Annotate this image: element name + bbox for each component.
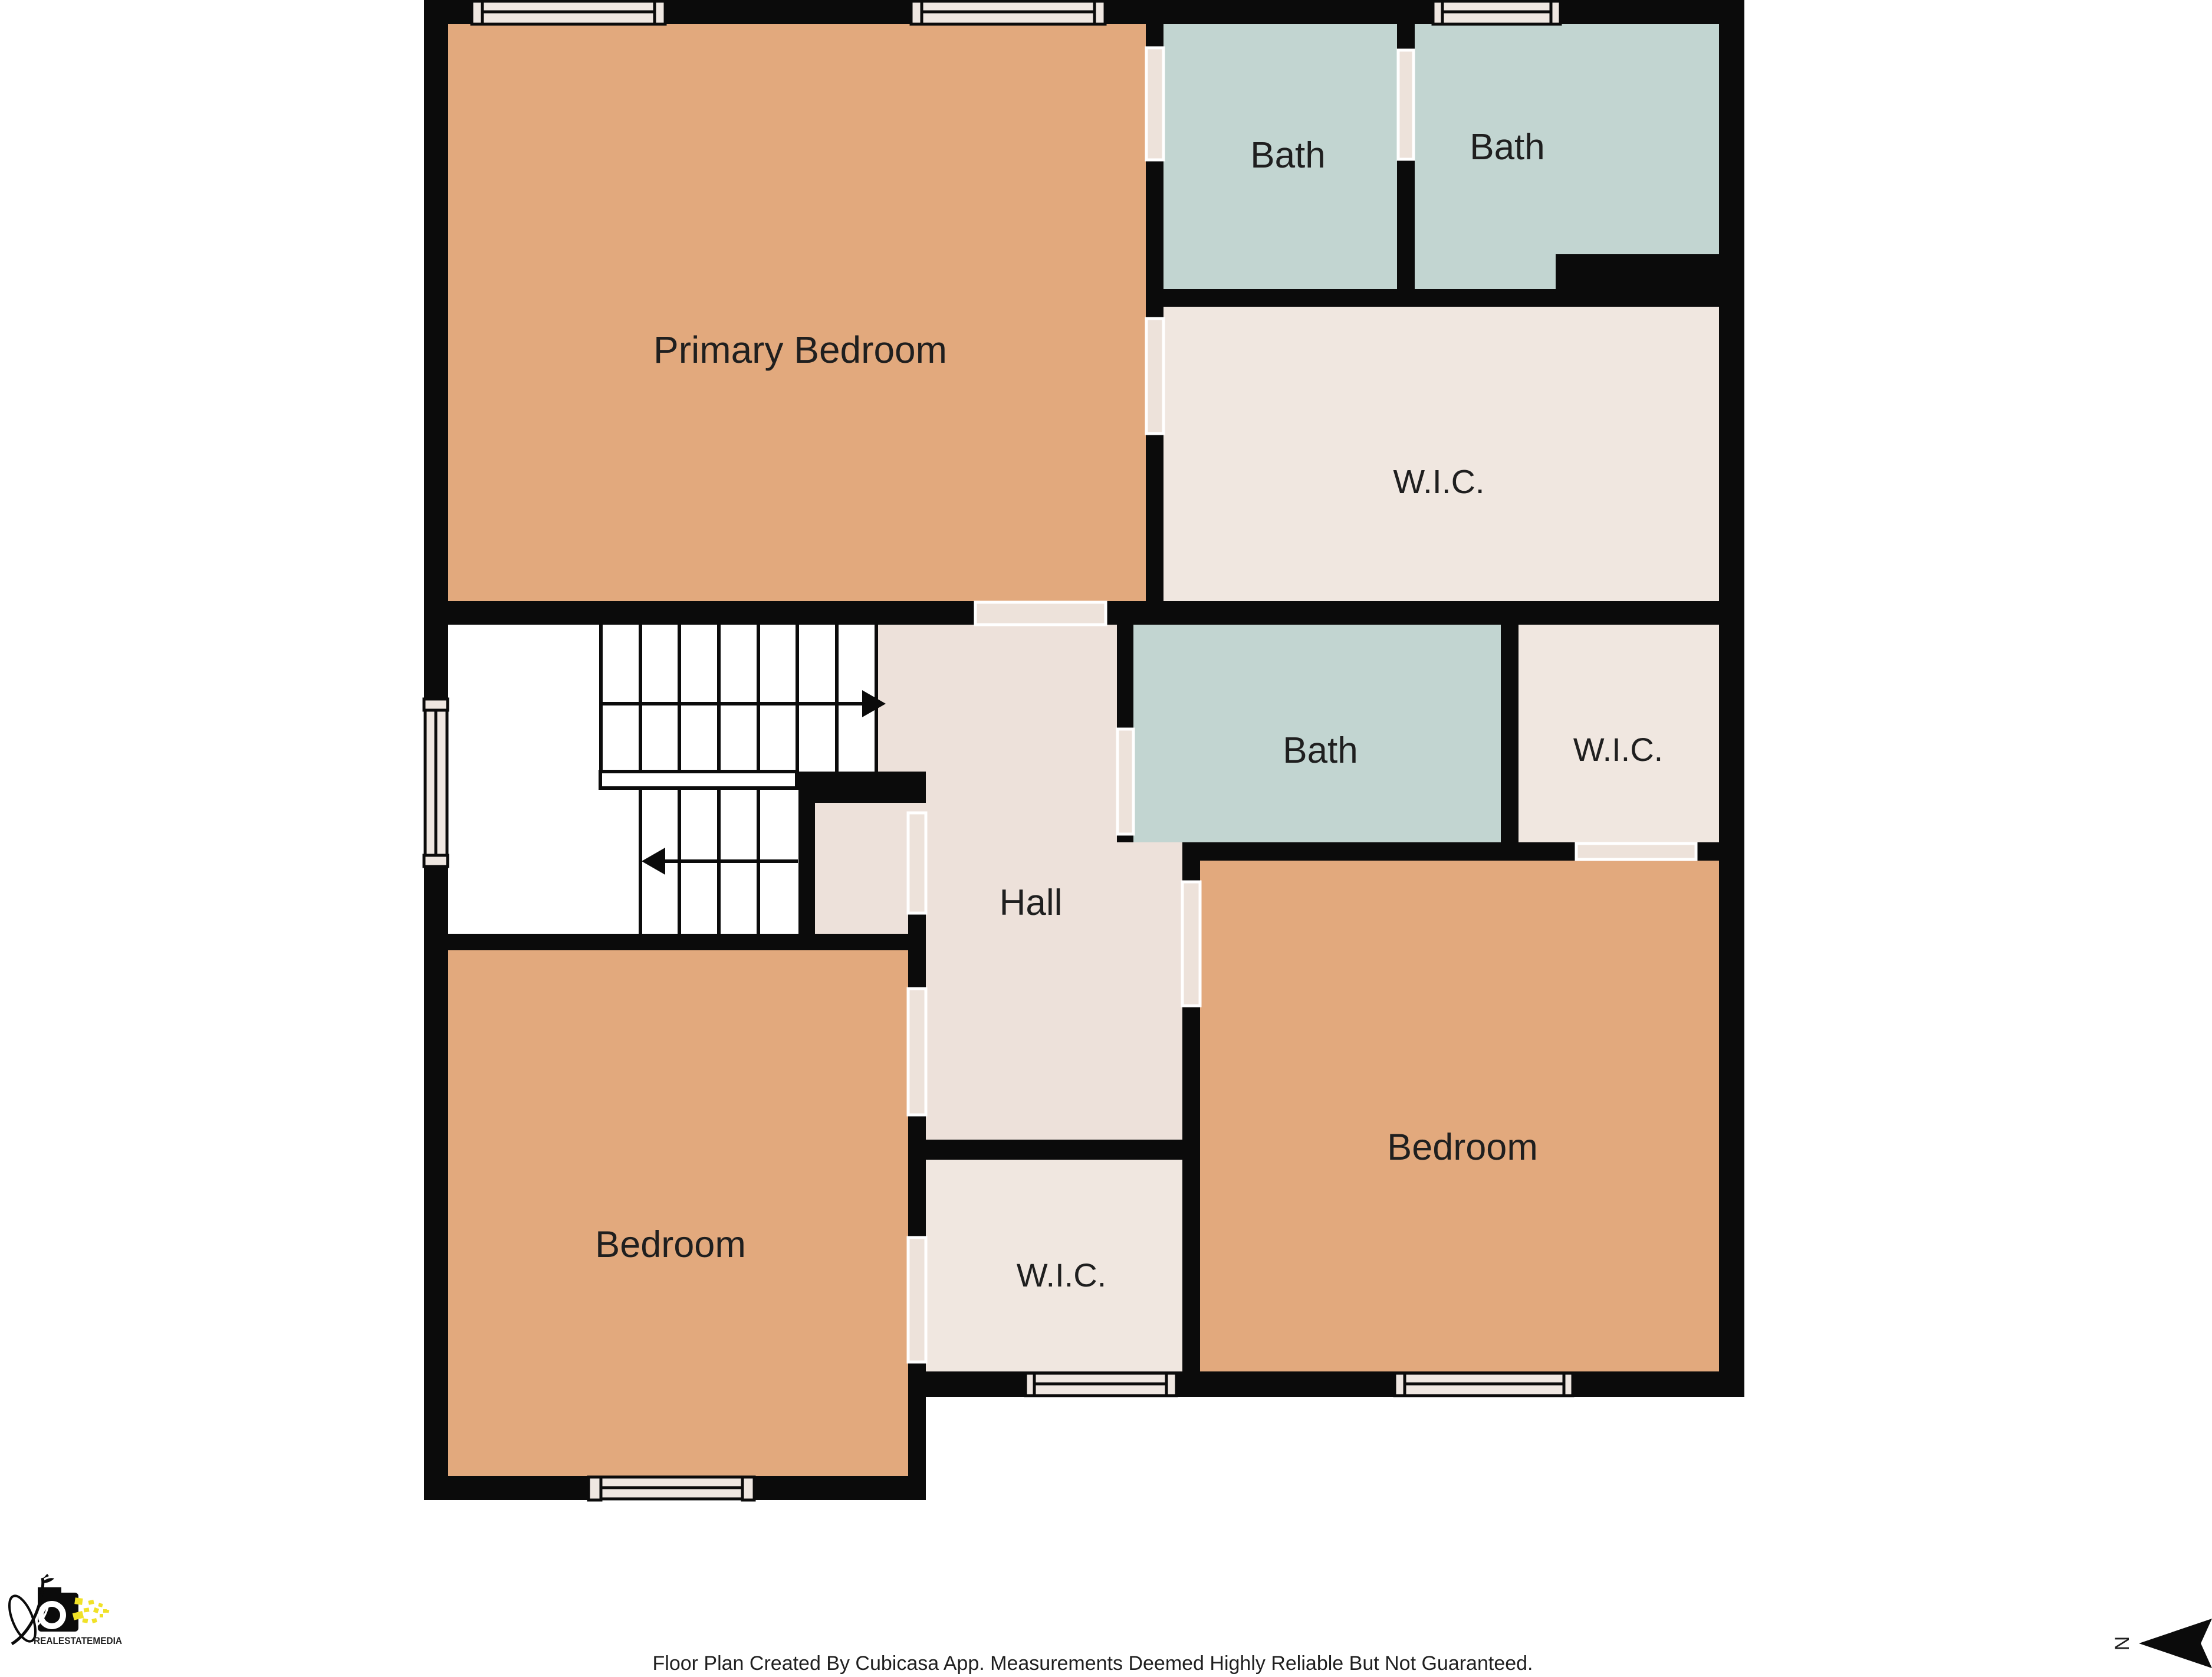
svg-text:Bedroom: Bedroom xyxy=(595,1224,746,1265)
svg-text:Floor Plan Created By Cubicasa: Floor Plan Created By Cubicasa App. Meas… xyxy=(653,1652,1533,1675)
svg-text:Bedroom: Bedroom xyxy=(1387,1127,1538,1168)
svg-text:W.I.C.: W.I.C. xyxy=(1393,463,1484,501)
svg-text:Hall: Hall xyxy=(1000,882,1063,923)
svg-text:Bath: Bath xyxy=(1470,127,1545,168)
svg-text:W.I.C.: W.I.C. xyxy=(1573,731,1663,768)
svg-text:Primary Bedroom: Primary Bedroom xyxy=(653,329,947,371)
svg-text:W.I.C.: W.I.C. xyxy=(1017,1256,1106,1294)
svg-text:Bath: Bath xyxy=(1283,730,1358,771)
svg-text:Bath: Bath xyxy=(1250,135,1326,176)
svg-text:REALESTATEMEDIA: REALESTATEMEDIA xyxy=(34,1635,122,1646)
svg-text:N: N xyxy=(2111,1636,2134,1651)
